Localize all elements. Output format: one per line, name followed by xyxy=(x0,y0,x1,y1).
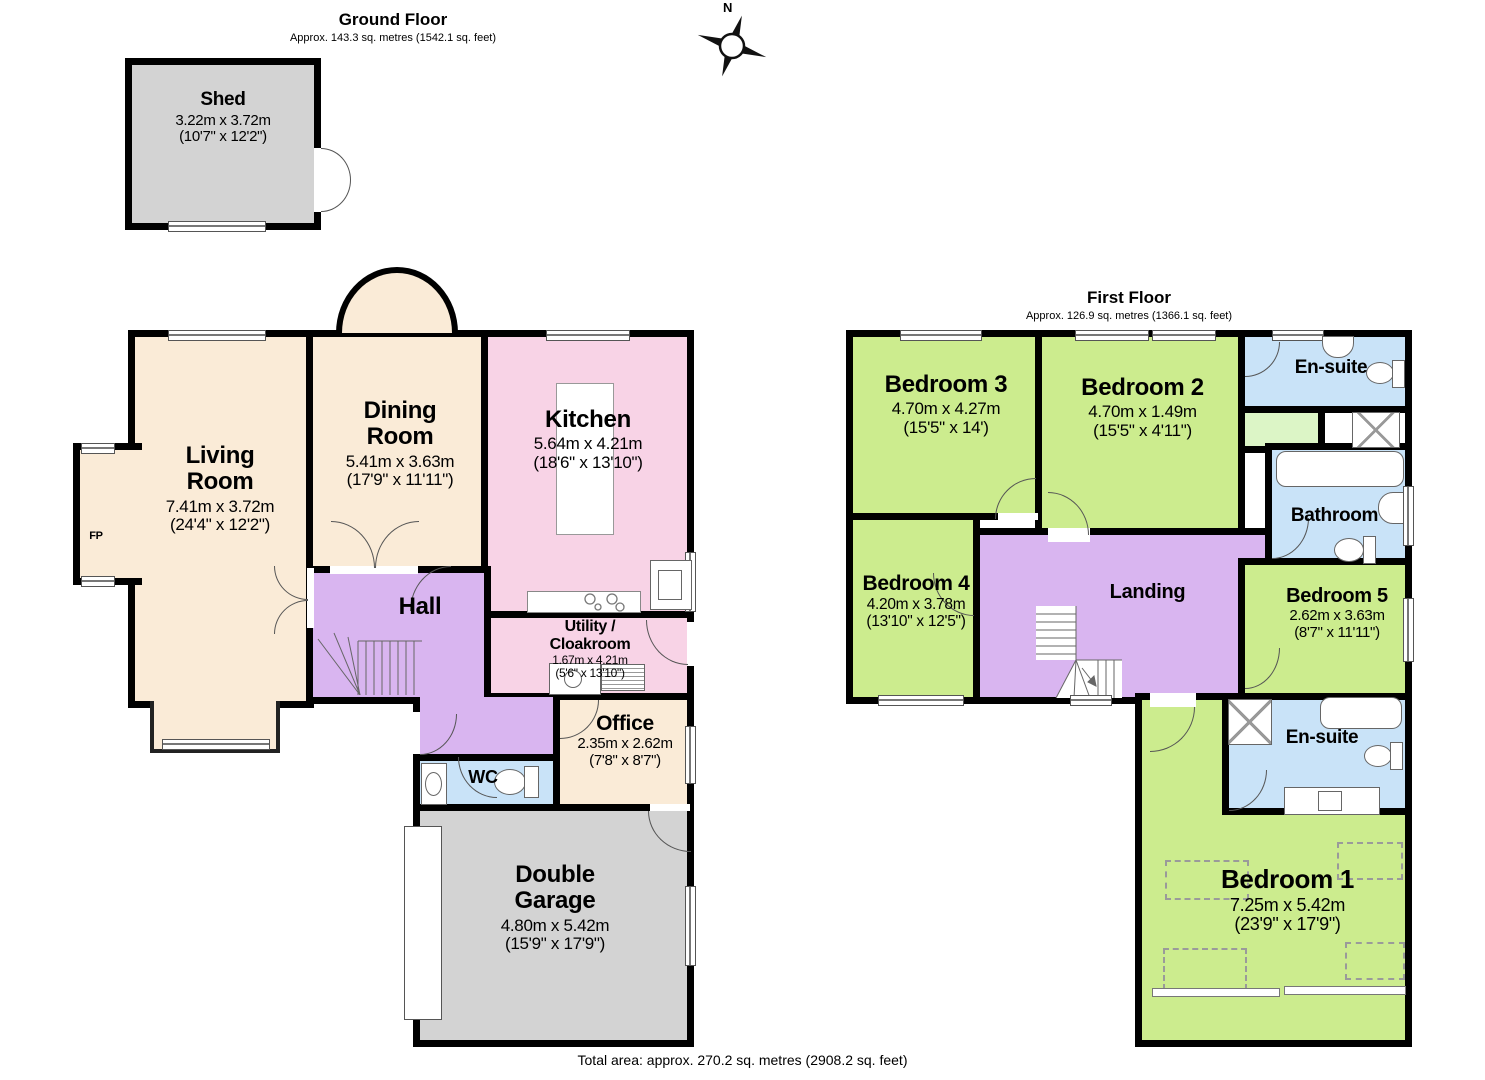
ground-floor-title: Ground Floor xyxy=(133,10,653,30)
room-bathroom-label: Bathroom xyxy=(1272,506,1397,527)
room-dining-room-label: Dining Room 5.41m x 3.63m (17'9" x 11'11… xyxy=(310,398,490,490)
room-utility-label: Utility / Cloakroom 1.67m x 4.21m (5'6" … xyxy=(495,618,685,681)
shower-icon xyxy=(1228,699,1272,745)
window xyxy=(168,221,266,232)
ground-floor-header: Ground Floor Approx. 143.3 sq. metres (1… xyxy=(133,10,653,44)
room-hall-label: Hall xyxy=(360,594,480,620)
sink-basin xyxy=(1318,791,1342,811)
door-gap xyxy=(413,712,420,754)
window xyxy=(546,330,630,341)
window xyxy=(162,739,270,750)
wall-segment xyxy=(306,697,420,704)
door-gap xyxy=(307,568,314,628)
toilet-icon xyxy=(1334,538,1364,562)
room-ensuite-bottom-label: En-suite xyxy=(1272,728,1372,749)
garage-door xyxy=(404,826,442,1020)
door-gap xyxy=(650,804,690,811)
room-shed-label: Shed 3.22m x 3.72m (10'7" x 12'2") xyxy=(133,90,313,146)
sink-basin xyxy=(658,570,682,600)
stairs-icon xyxy=(314,627,424,695)
door-gap xyxy=(687,622,694,666)
window xyxy=(685,886,696,966)
room-landing xyxy=(973,528,1272,704)
window xyxy=(1075,330,1149,341)
toilet-tank xyxy=(524,766,539,798)
toilet-tank xyxy=(1392,360,1405,388)
room-bedroom-1-label: Bedroom 1 7.25m x 5.42m (23'9" x 17'9") xyxy=(1180,865,1395,935)
window xyxy=(1403,486,1414,546)
reduced-headroom-outline xyxy=(1163,948,1247,990)
toilet-tank xyxy=(1390,742,1403,770)
window xyxy=(900,330,982,341)
ground-floor-area: Approx. 143.3 sq. metres (1542.1 sq. fee… xyxy=(133,32,653,44)
room-wc-label: WC xyxy=(448,768,518,788)
bath-icon xyxy=(1320,697,1402,729)
room-bedroom-4-label: Bedroom 4 4.20m x 3.78m (13'10" x 12'5") xyxy=(848,572,984,630)
compass-north-icon xyxy=(695,13,769,79)
room-bedroom-5-label: Bedroom 5 2.62m x 3.63m (8'7" x 11'11") xyxy=(1262,585,1412,641)
window xyxy=(1070,695,1112,706)
window xyxy=(878,695,964,706)
window xyxy=(1152,330,1216,341)
room-garage-label: Double Garage 4.80m x 5.42m (15'9" x 17'… xyxy=(440,862,670,954)
hob-icon xyxy=(527,591,641,613)
window xyxy=(168,330,266,341)
toilet-tank xyxy=(1363,536,1376,564)
reduced-headroom-outline xyxy=(1345,942,1405,980)
fireplace-label: FP xyxy=(74,530,118,542)
window xyxy=(1152,988,1280,997)
room-bedroom-3-label: Bedroom 3 4.70m x 4.27m (15'5" x 14') xyxy=(856,372,1036,438)
room-office-label: Office 2.35m x 2.62m (7'8" x 8'7") xyxy=(560,712,690,769)
first-floor-header: First Floor Approx. 126.9 sq. metres (13… xyxy=(846,288,1412,322)
first-floor-area: Approx. 126.9 sq. metres (1366.1 sq. fee… xyxy=(846,310,1412,322)
window xyxy=(81,576,115,587)
bow-window xyxy=(336,267,458,333)
room-kitchen-label: Kitchen 5.64m x 4.21m (18'6" x 13'10") xyxy=(490,407,686,473)
room-ensuite-top-label: En-suite xyxy=(1276,358,1386,379)
compass: N xyxy=(695,0,769,80)
window xyxy=(1272,330,1324,341)
bath-icon xyxy=(1276,451,1404,487)
floorplan-page: Ground Floor Approx. 143.3 sq. metres (1… xyxy=(0,0,1485,1080)
room-bedroom-2-label: Bedroom 2 4.70m x 1.49m (15'5" x 4'11") xyxy=(1045,375,1240,441)
room-landing-label: Landing xyxy=(1085,581,1210,603)
first-floor-title: First Floor xyxy=(846,288,1412,308)
room-living-room-label: Living Room 7.41m x 3.72m (24'4" x 12'2"… xyxy=(120,443,320,535)
door-gap xyxy=(314,148,321,212)
window xyxy=(81,443,115,454)
door-gap xyxy=(1150,693,1196,707)
total-area-text: Total area: approx. 270.2 sq. metres (29… xyxy=(0,1052,1485,1068)
shower-icon xyxy=(1352,412,1400,448)
door-arc xyxy=(321,148,351,212)
sink-basin xyxy=(425,772,442,796)
stairs-icon xyxy=(1036,606,1122,698)
window xyxy=(1284,986,1406,995)
